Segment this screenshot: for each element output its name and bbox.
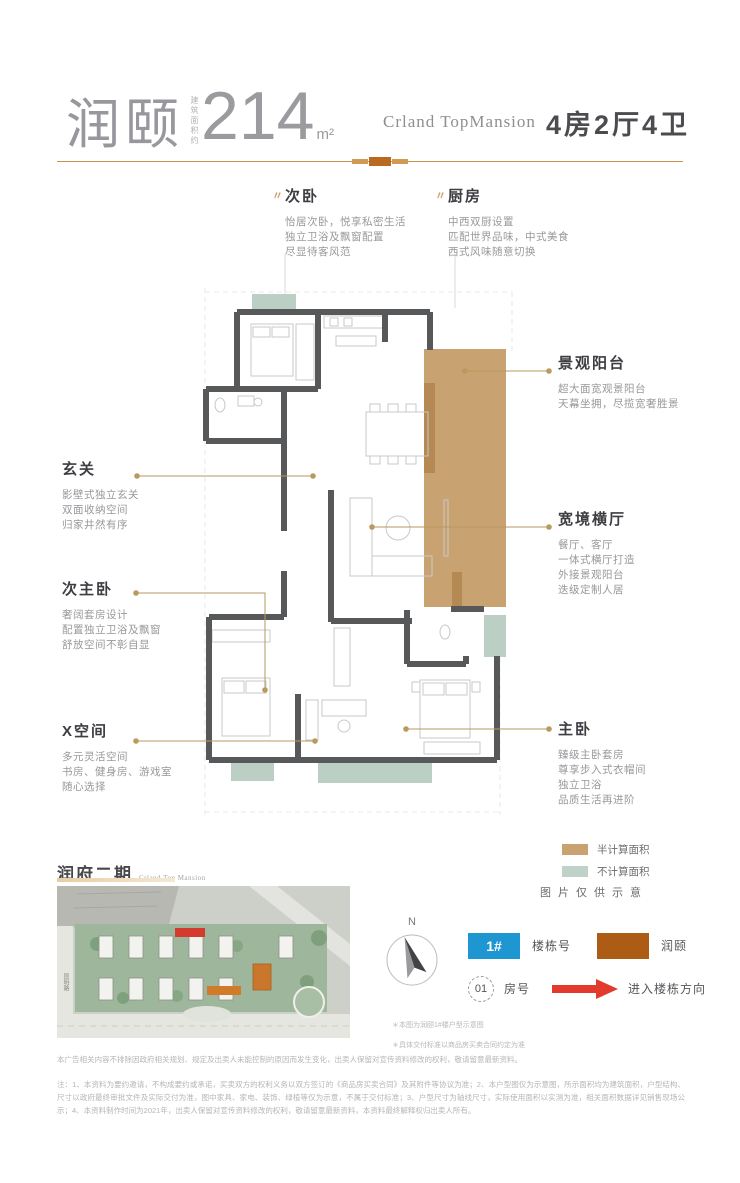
callout-line: 奢阔套房设计	[62, 608, 212, 623]
illustration-only-note: 图片仅供示意	[540, 884, 648, 900]
road-label: 昆明路	[62, 973, 69, 992]
top-callout-connectors	[285, 254, 455, 308]
callout-x-space: X空间 多元灵活空间 书房、健身房、游戏室 随心选择	[62, 720, 222, 795]
callout-line: 匹配世界品味，中式美食	[448, 230, 608, 245]
callout-title: X空间	[62, 720, 222, 741]
room-number-tag: 01	[468, 976, 494, 1002]
direction-arrow-label: 进入楼栋方向	[628, 976, 706, 1002]
site-plan-image: 昆明路	[57, 886, 350, 1038]
callout-line: 外接景观阳台	[558, 568, 693, 583]
uncounted-area-swatch	[562, 866, 588, 877]
callout-line: 西式风味随意切换	[448, 245, 608, 260]
floorplan-drawing	[0, 0, 740, 840]
callout-title: 宽境横厅	[558, 508, 693, 529]
callout-line: 双面收纳空间	[62, 503, 212, 518]
callout-line: 天幕坐拥，尽揽宽奢胜景	[558, 397, 693, 412]
callout-line: 餐厅、客厅	[558, 538, 693, 553]
callout-line: 影壁式独立玄关	[62, 488, 212, 503]
compass-icon	[380, 928, 444, 992]
callout-title: 主卧	[558, 718, 693, 739]
disclaimer-paragraph-1: 本广告相关内容不排除因政府相关规划、规定及出卖人未能控制的原因而发生变化，出卖人…	[57, 1053, 617, 1066]
callout-line: 舒放空间不彰自显	[62, 638, 212, 653]
callout-line: 书房、健身房、游戏室	[62, 765, 222, 780]
compass-north-label: N	[380, 916, 444, 928]
balcony-area	[424, 349, 506, 607]
direction-arrow-icon	[552, 979, 618, 999]
callout-line: 中西双厨设置	[448, 215, 608, 230]
legend-note-2: ＊具体交付标准以商品房买卖合同约定为准	[392, 1040, 692, 1052]
area-legend-half: 半计算面积	[562, 841, 650, 859]
legend-note-1: ＊本图为润颐1#楼户型示意图	[392, 1020, 692, 1032]
callout-title: 次主卧	[62, 578, 212, 599]
product-label: 润颐	[661, 933, 687, 959]
callout-line: 归家井然有序	[62, 518, 212, 533]
callout-line: 尊享步入式衣帽间	[558, 763, 693, 778]
callout-title: 景观阳台	[558, 352, 693, 373]
callout-line: 迭级定制人居	[558, 583, 693, 598]
callout-secondary-bedroom: 次卧 怡居次卧，悦享私密生活 独立卫浴及飘窗配置 尽显待客风范	[285, 185, 445, 260]
callout-line: 一体式横厅打造	[558, 553, 693, 568]
building-number-tag: 1#	[468, 933, 520, 959]
callout-view-balcony: 景观阳台 超大面宽观景阳台 天幕坐拥，尽揽宽奢胜景	[558, 352, 693, 412]
callout-title: 厨房	[448, 185, 608, 206]
quote-mark-icon	[435, 187, 448, 203]
area-legend-uncounted: 不计算面积	[562, 863, 650, 881]
callout-kitchen: 厨房 中西双厨设置 匹配世界品味，中式美食 西式风味随意切换	[448, 185, 608, 260]
callout-line: 配置独立卫浴及飘窗	[62, 623, 212, 638]
callout-entryway: 玄关 影壁式独立玄关 双面收纳空间 归家井然有序	[62, 458, 212, 533]
map-legend-row-1: 1# 楼栋号 润颐	[468, 933, 687, 959]
callout-line: 独立卫浴	[558, 778, 693, 793]
callout-line: 臻级主卧套房	[558, 748, 693, 763]
callout-wide-living-hall: 宽境横厅 餐厅、客厅 一体式横厅打造 外接景观阳台 迭级定制人居	[558, 508, 693, 598]
callout-line: 尽显待客风范	[285, 245, 445, 260]
callout-line: 怡居次卧，悦享私密生活	[285, 215, 445, 230]
callout-line: 独立卫浴及飘窗配置	[285, 230, 445, 245]
quote-mark-icon	[272, 187, 285, 203]
map-legend-row-2: 01 房号 进入楼栋方向	[468, 976, 706, 1002]
callout-line: 品质生活再进阶	[558, 793, 693, 808]
callout-line: 超大面宽观景阳台	[558, 382, 693, 397]
callout-line: 随心选择	[62, 780, 222, 795]
compass: N	[380, 916, 444, 992]
floorplan-flyer-page: 润颐 建筑面积约 214m² Crland TopMansion 4房2厅4卫	[0, 0, 740, 1183]
callout-second-master-bedroom: 次主卧 奢阔套房设计 配置独立卫浴及飘窗 舒放空间不彰自显	[62, 578, 212, 653]
disclaimer-paragraph-2: 注：1、本资料为要约邀请，不构成要约或承诺，买卖双方的权利义务以双方签订的《商品…	[57, 1078, 685, 1117]
uncounted-area-label: 不计算面积	[597, 866, 650, 878]
callout-title: 玄关	[62, 458, 212, 479]
callout-title: 次卧	[285, 185, 445, 206]
building-number-label: 楼栋号	[532, 933, 571, 959]
site-plan-title-underline	[57, 878, 175, 882]
callout-master-bedroom: 主卧 臻级主卧套房 尊享步入式衣帽间 独立卫浴 品质生活再进阶	[558, 718, 693, 808]
half-area-swatch	[562, 844, 588, 855]
room-number-label: 房号	[504, 976, 530, 1002]
callout-line: 多元灵活空间	[62, 750, 222, 765]
product-color-swatch	[597, 933, 649, 959]
half-area-label: 半计算面积	[597, 844, 650, 856]
